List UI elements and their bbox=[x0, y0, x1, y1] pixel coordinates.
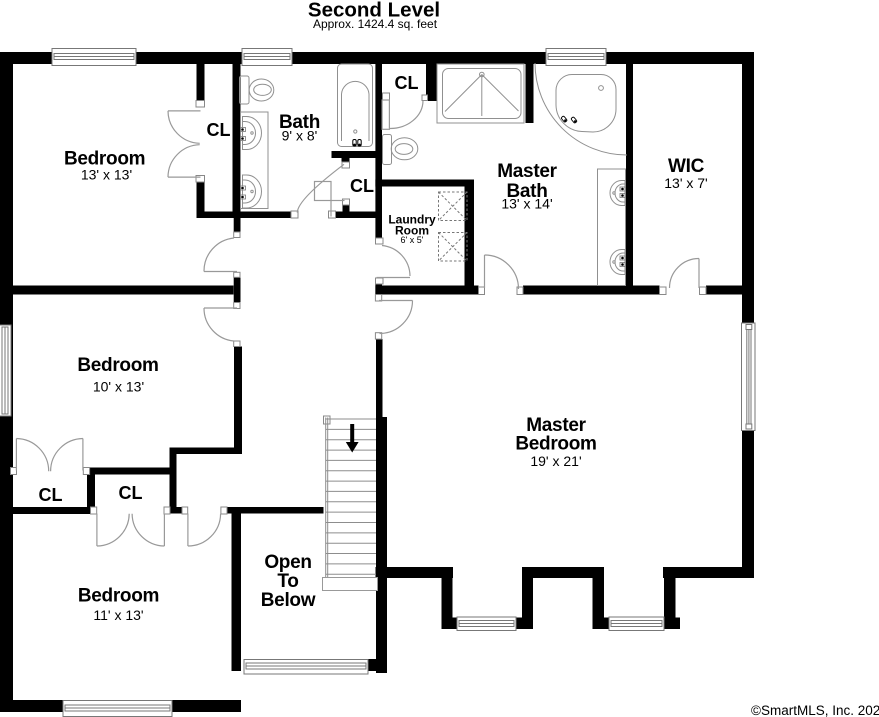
svg-text:CL: CL bbox=[350, 176, 374, 196]
svg-text:©SmartMLS, Inc. 2021: ©SmartMLS, Inc. 2021 bbox=[751, 703, 879, 717]
svg-text:11' x 13': 11' x 13' bbox=[93, 607, 143, 623]
svg-text:CL: CL bbox=[39, 485, 63, 505]
svg-text:Approx. 1424.4 sq. feet: Approx. 1424.4 sq. feet bbox=[313, 17, 438, 31]
svg-text:13' x 7': 13' x 7' bbox=[664, 175, 707, 191]
svg-text:Bedroom: Bedroom bbox=[77, 355, 158, 376]
svg-text:Master: Master bbox=[497, 161, 557, 182]
svg-text:19' x 21': 19' x 21' bbox=[530, 453, 581, 469]
svg-text:10' x 13': 10' x 13' bbox=[93, 379, 144, 395]
svg-text:CL: CL bbox=[119, 483, 143, 503]
svg-text:13' x 13': 13' x 13' bbox=[81, 167, 132, 183]
svg-text:13' x 14': 13' x 14' bbox=[501, 196, 552, 212]
svg-text:Bedroom: Bedroom bbox=[78, 586, 159, 607]
svg-text:6' x 5': 6' x 5' bbox=[401, 235, 424, 245]
svg-text:Bedroom: Bedroom bbox=[515, 434, 596, 455]
svg-text:CL: CL bbox=[207, 120, 231, 140]
svg-text:CL: CL bbox=[395, 73, 419, 93]
svg-text:Open: Open bbox=[264, 552, 311, 573]
svg-text:9' x 8': 9' x 8' bbox=[282, 128, 318, 144]
svg-text:To: To bbox=[277, 571, 298, 592]
svg-text:Below: Below bbox=[261, 590, 316, 611]
svg-text:WIC: WIC bbox=[668, 156, 705, 177]
